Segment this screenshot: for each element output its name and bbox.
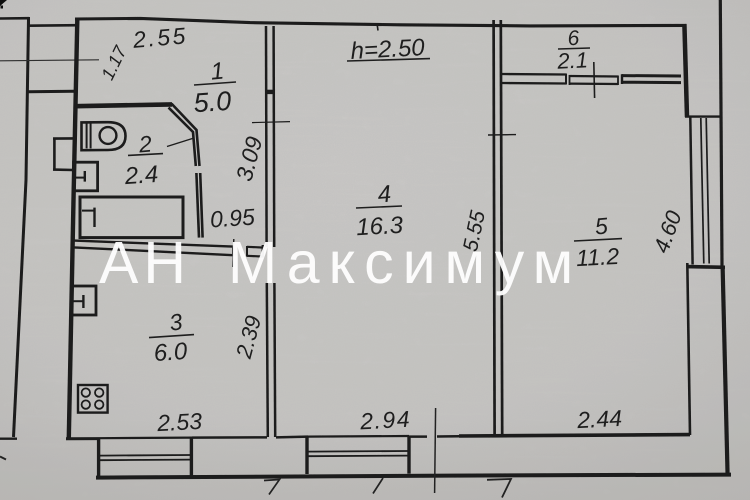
svg-text:2.4: 2.4 — [123, 161, 159, 190]
svg-text:АН: АН — [99, 230, 191, 296]
svg-text:5: 5 — [594, 213, 609, 240]
svg-text:2.1: 2.1 — [556, 47, 589, 74]
svg-text:2.55: 2.55 — [131, 22, 189, 53]
svg-text:2.53: 2.53 — [156, 408, 203, 436]
svg-text:0.95: 0.95 — [209, 203, 256, 232]
svg-text:5.0: 5.0 — [193, 86, 233, 119]
svg-text:2.94: 2.94 — [359, 406, 412, 435]
svg-text:2.44: 2.44 — [576, 405, 623, 433]
svg-text:6.0: 6.0 — [153, 338, 189, 367]
svg-text:1: 1 — [210, 57, 226, 85]
svg-text:Максимум: Максимум — [228, 230, 582, 296]
svg-text:4: 4 — [377, 180, 393, 208]
